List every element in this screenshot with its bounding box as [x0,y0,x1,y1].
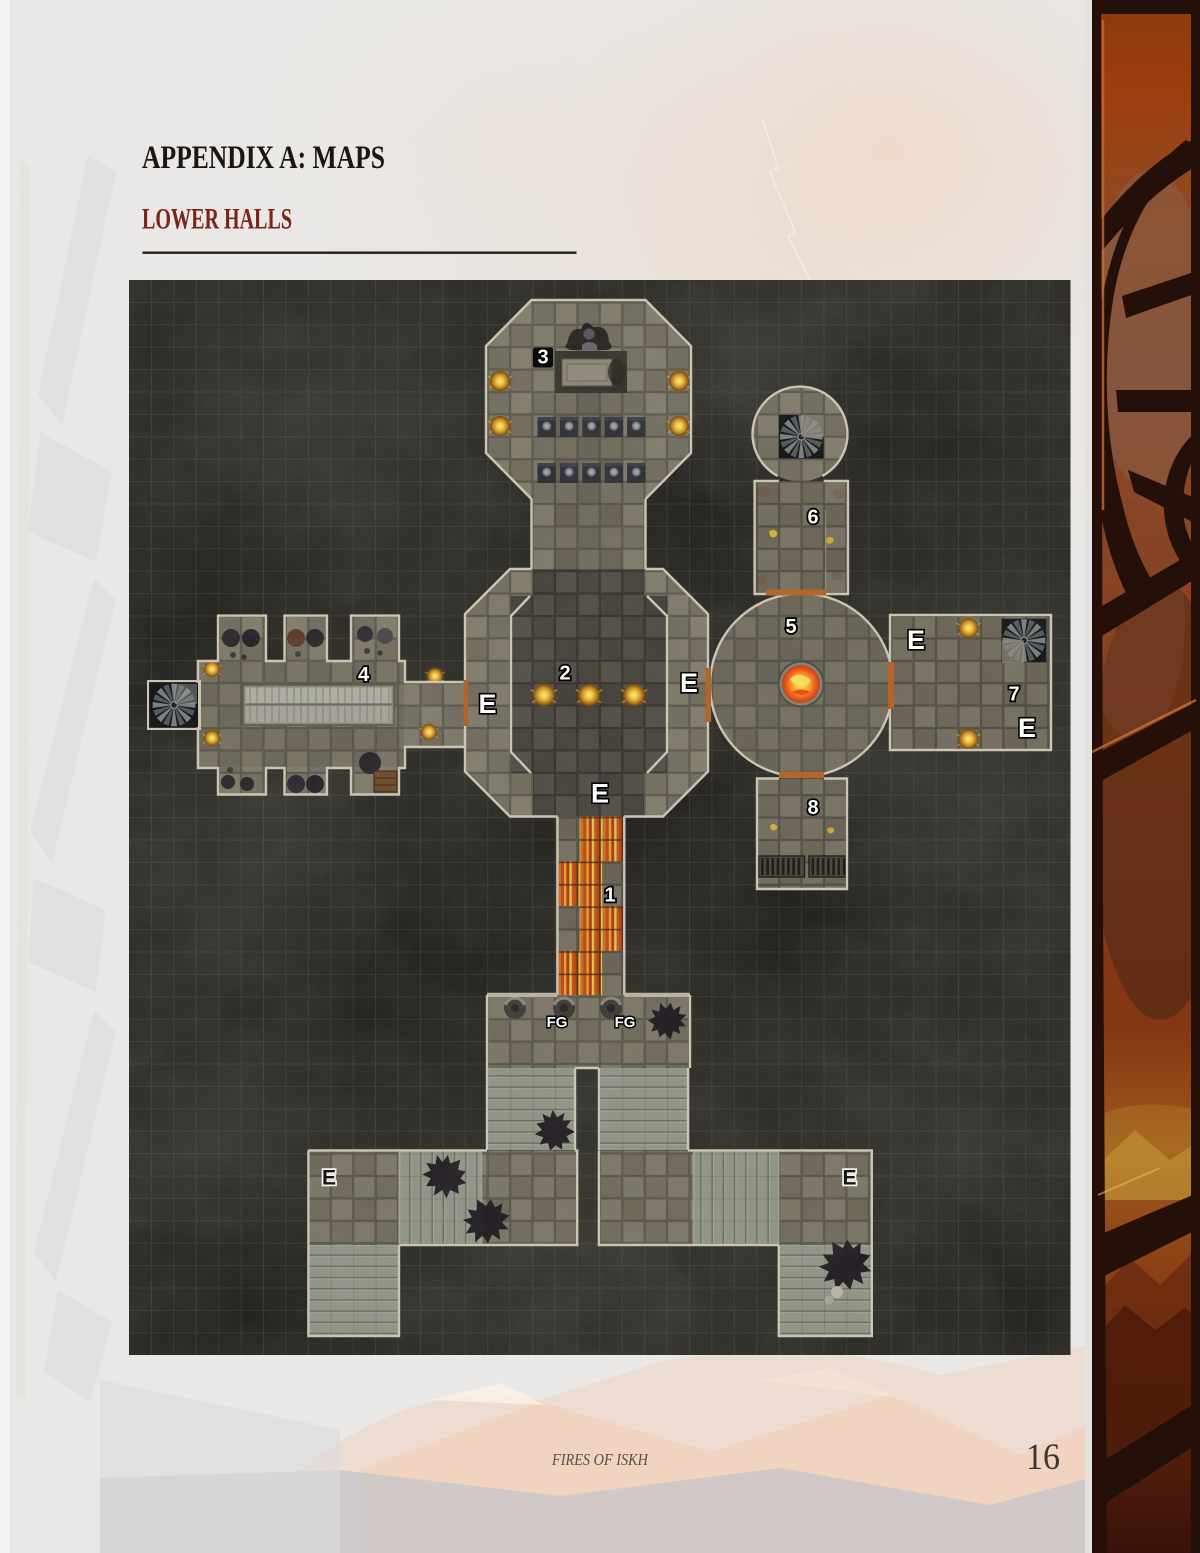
svg-text:APPENDIX A: MAPS: APPENDIX A: MAPS [142,140,385,176]
svg-text:E: E [680,668,698,698]
svg-text:FIRES OF ISKH: FIRES OF ISKH [551,1450,649,1469]
svg-text:1: 1 [604,885,615,907]
svg-text:6: 6 [807,507,818,529]
svg-text:FG: FG [615,1014,636,1031]
svg-text:E: E [478,689,496,719]
svg-text:3: 3 [537,347,548,369]
svg-text:2: 2 [559,663,570,685]
svg-text:E: E [907,625,925,655]
svg-text:E: E [322,1167,336,1190]
svg-text:8: 8 [807,797,818,819]
svg-text:E: E [1018,713,1036,743]
svg-text:E: E [591,779,609,809]
svg-text:E: E [842,1167,856,1190]
svg-text:16: 16 [1026,1437,1060,1478]
svg-text:7: 7 [1008,684,1019,706]
svg-text:FG: FG [547,1014,568,1031]
svg-text:4: 4 [358,664,370,686]
svg-text:LOWER HALLS: LOWER HALLS [142,203,292,236]
svg-text:5: 5 [785,616,796,638]
